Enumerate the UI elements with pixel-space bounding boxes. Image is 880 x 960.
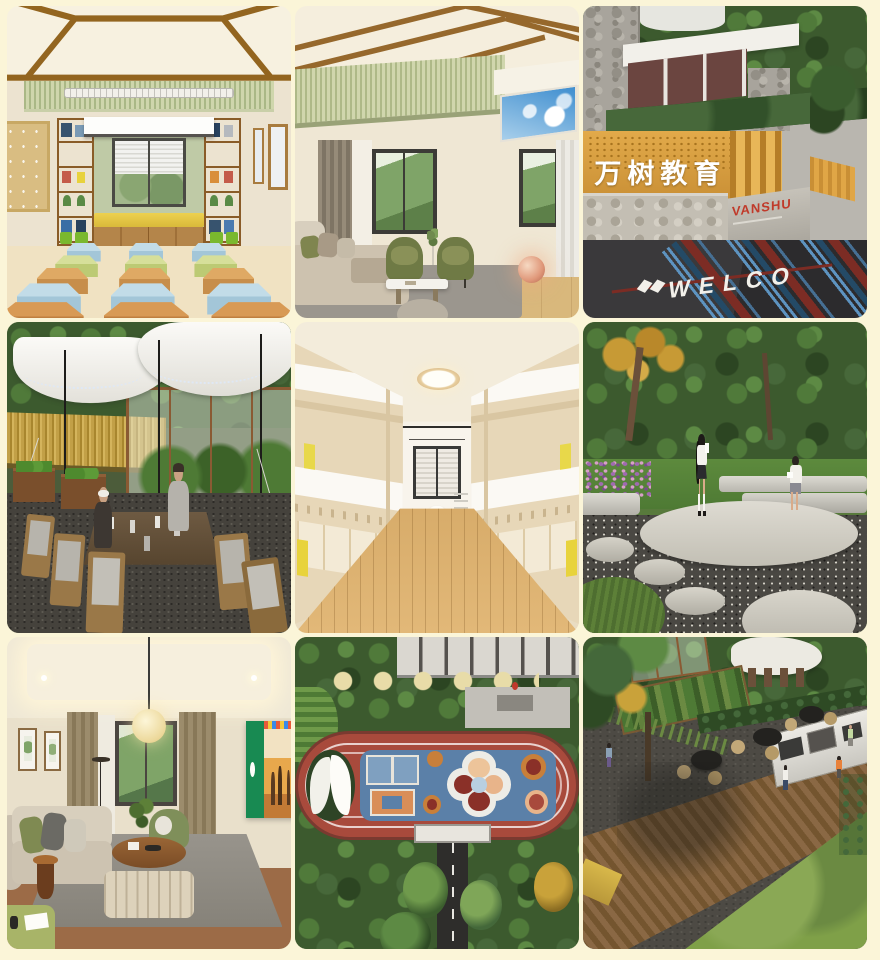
photo-garden[interactable] bbox=[583, 322, 867, 634]
play-court bbox=[370, 789, 415, 816]
hanger-rail bbox=[409, 439, 466, 441]
coffee-table bbox=[112, 837, 186, 868]
tiny-person bbox=[606, 743, 613, 766]
planter-box bbox=[13, 468, 56, 502]
wall-art-frame bbox=[44, 731, 61, 772]
photo-dormitory[interactable] bbox=[295, 322, 579, 634]
tiny-person bbox=[782, 765, 789, 790]
ottoman bbox=[104, 871, 195, 918]
photo-grid: 万树教育 VANSHU WELCO bbox=[0, 0, 880, 960]
tree-shadow bbox=[617, 762, 773, 893]
round-platform bbox=[640, 501, 859, 566]
infield-court bbox=[360, 750, 556, 822]
seated-person bbox=[163, 465, 194, 552]
sky-ceiling-panel bbox=[500, 85, 577, 143]
greenhouse bbox=[126, 387, 291, 509]
golden-tree bbox=[534, 862, 574, 912]
photo-classroom[interactable] bbox=[7, 6, 291, 318]
string-lights bbox=[24, 359, 143, 389]
tiny-person bbox=[836, 756, 843, 778]
string-lights bbox=[149, 350, 268, 384]
photo-lounge[interactable] bbox=[7, 637, 291, 949]
standing-student bbox=[691, 434, 714, 528]
paper-lantern bbox=[132, 709, 166, 743]
sky-gap bbox=[640, 6, 725, 31]
wood-chair bbox=[85, 552, 125, 634]
tree-blob bbox=[403, 862, 448, 918]
stone-bench bbox=[583, 493, 640, 515]
photo-entrance[interactable]: 万树教育 VANSHU WELCO bbox=[583, 6, 867, 318]
photo-tent-dining[interactable] bbox=[7, 322, 291, 634]
gatehouse bbox=[414, 824, 491, 843]
armchair bbox=[386, 237, 423, 281]
patio-chair bbox=[785, 718, 798, 730]
reading-chair bbox=[7, 905, 55, 949]
plant-vase bbox=[427, 227, 438, 264]
wall-poster bbox=[246, 721, 291, 818]
patio-chair bbox=[731, 740, 745, 754]
wood-chair bbox=[50, 533, 86, 607]
brand-wordmark: VANSHU bbox=[732, 195, 792, 218]
seated-person bbox=[89, 487, 117, 562]
stepping-stone bbox=[586, 537, 634, 562]
round-table bbox=[753, 728, 781, 747]
photo-livingroom[interactable] bbox=[295, 6, 579, 318]
stool-rows bbox=[7, 6, 291, 318]
downhill-fence bbox=[810, 156, 855, 202]
patio-chair bbox=[824, 712, 837, 724]
tree-canopy-overlay bbox=[583, 637, 691, 737]
wall-art-frame bbox=[18, 728, 36, 772]
tennis-court bbox=[366, 755, 419, 785]
lamp-cord bbox=[148, 637, 150, 715]
picnic-tables bbox=[748, 668, 810, 687]
roadside-tree bbox=[810, 56, 855, 137]
photo-playground-aerial[interactable] bbox=[295, 637, 579, 949]
sheer-curtain bbox=[556, 140, 579, 290]
downlight bbox=[41, 675, 47, 681]
armchair bbox=[437, 237, 474, 281]
downlight bbox=[251, 675, 257, 681]
entry-plaza bbox=[465, 687, 570, 728]
window bbox=[519, 149, 559, 227]
canopy-structure bbox=[306, 750, 354, 822]
fence-brand-text: 万树教育 bbox=[594, 152, 726, 191]
road: WELCO bbox=[583, 240, 867, 318]
side-table bbox=[33, 855, 59, 899]
shrub-border bbox=[839, 774, 867, 855]
stepping-stone bbox=[665, 587, 725, 615]
stepping-stone bbox=[634, 559, 685, 585]
ceiling-lamp bbox=[417, 368, 460, 390]
seated-student bbox=[782, 456, 810, 515]
end-window bbox=[413, 446, 461, 499]
sofa bbox=[7, 806, 112, 899]
photo-terrace-aerial[interactable] bbox=[583, 637, 867, 949]
tiny-person bbox=[847, 725, 854, 747]
